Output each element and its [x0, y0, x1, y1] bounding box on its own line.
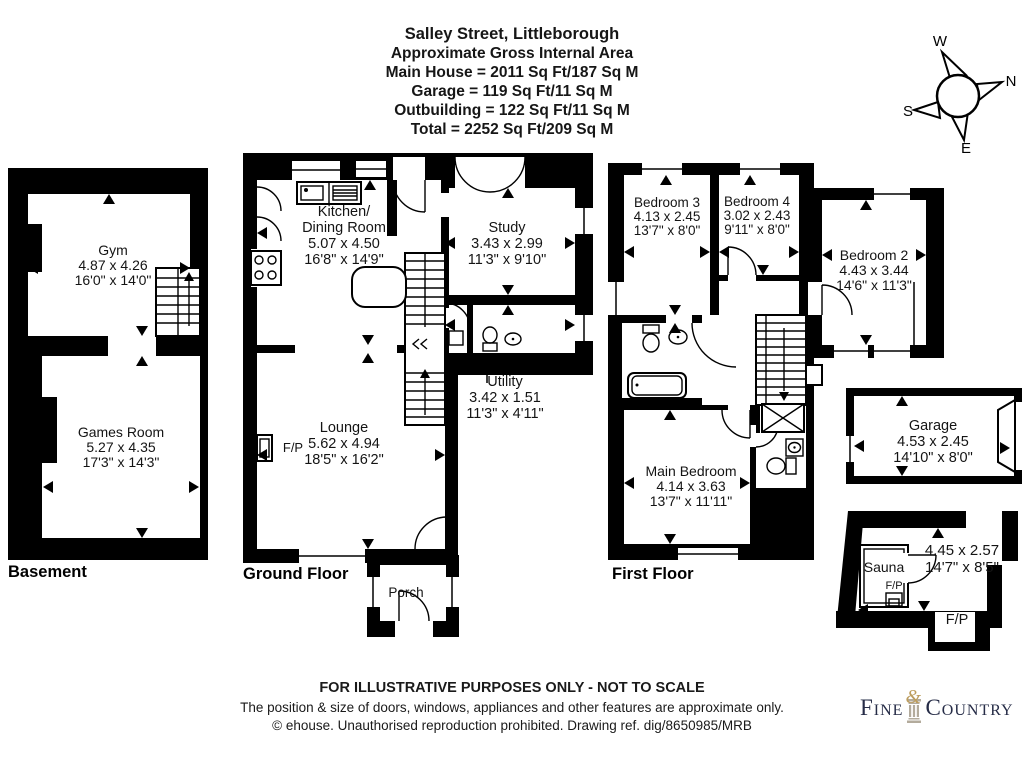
- bath-icon: [628, 373, 686, 398]
- room-metric: 4.14 x 3.63: [626, 479, 756, 494]
- gym-label: Gym 4.87 x 4.26 16'0" x 14'0": [53, 243, 173, 288]
- basement-title: Basement: [8, 563, 87, 582]
- area-main-house: Main House = 2011 Sq Ft/187 Sq M: [312, 63, 712, 82]
- room-name: Lounge: [269, 420, 419, 436]
- outbuilding-fireplace-label: F/P: [932, 612, 982, 628]
- room-imperial: 13'7" x 11'11": [626, 494, 756, 509]
- room-metric: 3.43 x 2.99: [442, 236, 572, 252]
- meter-box: [806, 365, 822, 385]
- room-name: Games Room: [51, 425, 191, 440]
- sauna-label: Sauna: [854, 560, 914, 575]
- area-outbuilding: Outbuilding = 122 Sq Ft/11 Sq M: [312, 101, 712, 120]
- main-bedroom-label: Main Bedroom 4.14 x 3.63 13'7" x 11'11": [626, 464, 756, 509]
- logo-column: &: [904, 692, 924, 724]
- room-imperial: 11'3" x 4'11": [440, 406, 570, 422]
- room-name: Garage: [863, 418, 1003, 434]
- room-imperial: 14'6" x 11'3": [814, 278, 934, 293]
- utility-label: Utility 3.42 x 1.51 11'3" x 4'11": [440, 374, 570, 422]
- disclaimer-line2: The position & size of doors, windows, a…: [112, 700, 912, 715]
- bedroom2-label: Bedroom 2 4.43 x 3.44 14'6" x 11'3": [814, 248, 934, 293]
- bedroom4-label: Bedroom 4 3.02 x 2.43 9'11" x 8'0": [702, 195, 812, 237]
- disclaimer-line1: FOR ILLUSTRATIVE PURPOSES ONLY - NOT TO …: [112, 680, 912, 696]
- games-room-label: Games Room 5.27 x 4.35 17'3" x 14'3": [51, 425, 191, 470]
- room-imperial: 17'3" x 14'3": [51, 455, 191, 470]
- room-metric: 4.45 x 2.57: [897, 542, 1024, 559]
- room-imperial: 14'10" x 8'0": [863, 450, 1003, 466]
- logo-fine: Fine: [860, 693, 903, 723]
- room-name: Sauna: [854, 560, 914, 575]
- area-total: Total = 2252 Sq Ft/209 Sq M: [312, 120, 712, 139]
- shower-icon: [762, 404, 804, 432]
- compass-south: S: [903, 103, 913, 120]
- room-metric: 4.87 x 4.26: [53, 258, 173, 273]
- room-metric: 5.27 x 4.35: [51, 440, 191, 455]
- garage-label: Garage 4.53 x 2.45 14'10" x 8'0": [863, 418, 1003, 466]
- sink-icon: [297, 182, 361, 204]
- logo-ampersand: &: [905, 686, 921, 709]
- floorplan-page: Salley Street, Littleborough Approximate…: [0, 0, 1024, 768]
- compass-north: N: [1006, 73, 1017, 90]
- basement-plan: [8, 168, 208, 560]
- room-metric: 3.02 x 2.43: [702, 209, 812, 223]
- room-name: Utility: [440, 374, 570, 390]
- room-imperial: 11'3" x 9'10": [442, 252, 572, 268]
- room-metric: 5.07 x 4.50: [269, 236, 419, 252]
- outbuilding-plan: [828, 503, 1024, 651]
- room-name: Dining Room: [269, 220, 419, 236]
- ground-floor-title: Ground Floor: [243, 565, 348, 584]
- first-floor-title: First Floor: [612, 565, 694, 584]
- compass-west: W: [933, 33, 948, 50]
- porch-label: Porch: [366, 585, 446, 600]
- sauna-fireplace-label: F/P: [874, 580, 914, 592]
- kitchen-label: Kitchen/ Dining Room 5.07 x 4.50 16'8" x…: [269, 204, 419, 268]
- room-name: Main Bedroom: [626, 464, 756, 479]
- title-block: Salley Street, Littleborough Approximate…: [312, 24, 712, 139]
- area-garage: Garage = 119 Sq Ft/11 Sq M: [312, 82, 712, 101]
- room-imperial: 16'8" x 14'9": [269, 252, 419, 268]
- room-name: Kitchen/: [269, 204, 419, 220]
- copyright-line: © ehouse. Unauthorised reproduction proh…: [112, 718, 912, 733]
- logo-country: Country: [925, 693, 1013, 723]
- windows: [846, 436, 854, 462]
- lounge-fireplace-label: F/P: [276, 440, 310, 455]
- room-name: Porch: [366, 585, 446, 600]
- property-address: Salley Street, Littleborough: [312, 24, 712, 44]
- room-imperial: 14'7" x 8'5": [897, 559, 1024, 576]
- room-metric: 4.43 x 3.44: [814, 263, 934, 278]
- room-imperial: 16'0" x 14'0": [53, 273, 173, 288]
- room-metric: 3.42 x 1.51: [440, 390, 570, 406]
- dining-table-icon: [352, 267, 406, 307]
- room-name: Bedroom 2: [814, 248, 934, 263]
- room-name: Study: [442, 220, 572, 236]
- compass-east: E: [961, 140, 971, 154]
- room-name: Bedroom 4: [702, 195, 812, 209]
- room-name: Gym: [53, 243, 173, 258]
- stairs-icon: [756, 315, 806, 405]
- room-imperial: 9'11" x 8'0": [702, 223, 812, 237]
- room-metric: 4.53 x 2.45: [863, 434, 1003, 450]
- study-label: Study 3.43 x 2.99 11'3" x 9'10": [442, 220, 572, 268]
- area-subtitle: Approximate Gross Internal Area: [312, 44, 712, 63]
- fine-country-logo: Fine & Country: [860, 692, 1014, 724]
- outbuilding-dims-label: 4.45 x 2.57 14'7" x 8'5": [897, 542, 1024, 576]
- stairs-icon: [405, 253, 445, 425]
- compass-icon: W N S E: [900, 30, 1020, 154]
